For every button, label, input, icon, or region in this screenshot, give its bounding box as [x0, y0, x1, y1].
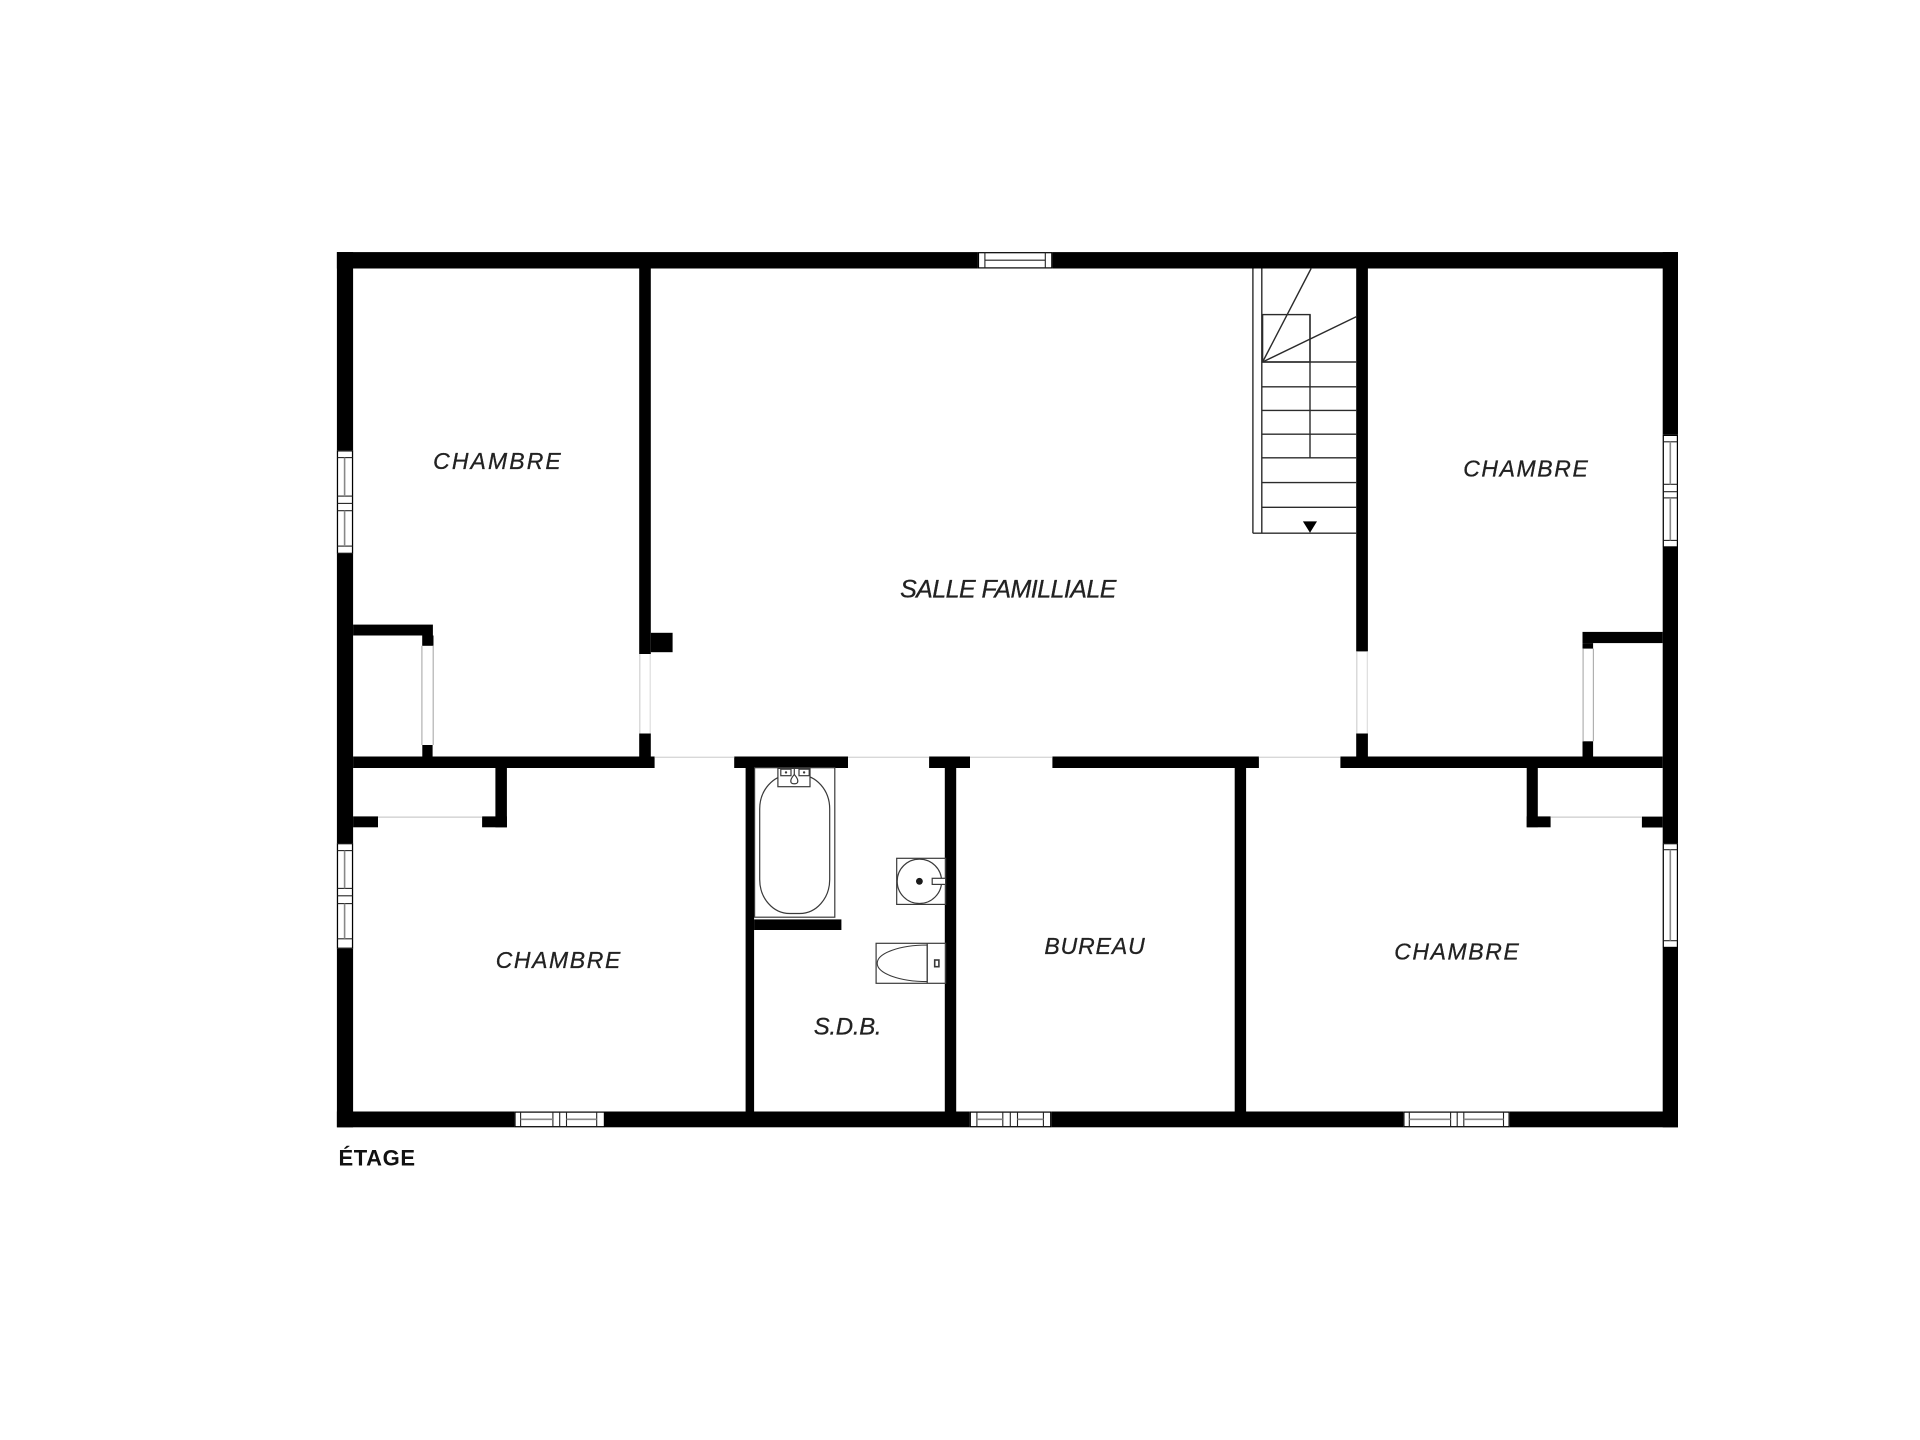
- svg-text:ÉTAGE: ÉTAGE: [339, 1146, 416, 1171]
- svg-text:CHAMBRE: CHAMBRE: [433, 448, 563, 474]
- svg-text:S.D.B.: S.D.B.: [814, 1014, 882, 1041]
- svg-text:CHAMBRE: CHAMBRE: [496, 947, 622, 973]
- svg-text:CHAMBRE: CHAMBRE: [1394, 939, 1520, 965]
- svg-text:BUREAU: BUREAU: [1044, 933, 1145, 959]
- svg-text:SALLE FAMILLIALE: SALLE FAMILLIALE: [900, 575, 1117, 603]
- svg-text:CHAMBRE: CHAMBRE: [1463, 456, 1589, 482]
